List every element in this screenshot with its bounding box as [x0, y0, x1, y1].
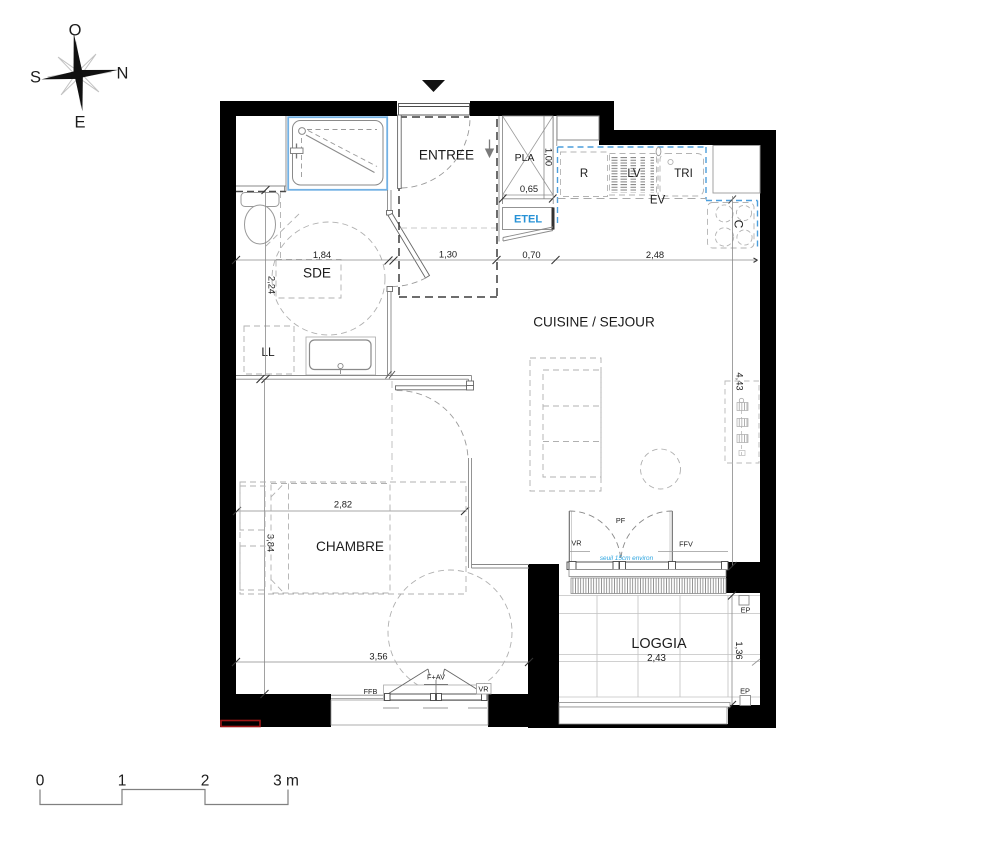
- svg-text:0: 0: [36, 773, 45, 790]
- svg-text:4,43: 4,43: [735, 372, 746, 390]
- svg-text:0,70: 0,70: [522, 249, 540, 260]
- svg-text:ETEL: ETEL: [514, 214, 542, 226]
- svg-text:LL: LL: [261, 345, 275, 359]
- svg-text:FFV: FFV: [679, 540, 693, 549]
- svg-text:seuil 15cm environ: seuil 15cm environ: [600, 555, 654, 562]
- svg-text:3 m: 3 m: [273, 773, 299, 790]
- svg-text:2: 2: [201, 773, 210, 790]
- svg-text:PLA: PLA: [515, 152, 535, 164]
- svg-text:PF: PF: [616, 516, 626, 525]
- svg-text:EP: EP: [741, 606, 751, 615]
- svg-text:1,84: 1,84: [313, 249, 331, 260]
- svg-text:1,30: 1,30: [439, 249, 457, 260]
- svg-text:O: O: [69, 22, 82, 40]
- svg-text:LOGGIA: LOGGIA: [631, 636, 687, 652]
- svg-text:EP: EP: [740, 687, 750, 696]
- svg-text:S: S: [30, 69, 41, 87]
- svg-text:TRI: TRI: [674, 168, 693, 180]
- svg-text:VR: VR: [478, 685, 488, 694]
- svg-text:SDE: SDE: [303, 266, 331, 281]
- svg-text:0,65: 0,65: [520, 183, 538, 194]
- svg-text:C: C: [732, 220, 746, 229]
- svg-text:ENTREE: ENTREE: [419, 148, 474, 163]
- svg-text:2,43: 2,43: [647, 653, 666, 664]
- svg-text:LV: LV: [627, 168, 641, 180]
- svg-text:CHAMBRE: CHAMBRE: [316, 539, 384, 554]
- svg-text:2,82: 2,82: [334, 499, 352, 510]
- svg-text:R: R: [580, 168, 588, 180]
- svg-text:CUISINE / SEJOUR: CUISINE / SEJOUR: [533, 315, 655, 330]
- svg-text:2,24: 2,24: [267, 276, 278, 294]
- svg-text:1: 1: [118, 773, 127, 790]
- svg-text:3,56: 3,56: [369, 651, 387, 662]
- svg-text:2,48: 2,48: [646, 249, 664, 260]
- svg-text:N: N: [117, 65, 129, 83]
- svg-text:EV: EV: [650, 195, 666, 207]
- svg-text:VR: VR: [571, 539, 581, 548]
- svg-text:E: E: [74, 114, 85, 132]
- svg-text:FFB: FFB: [364, 687, 378, 696]
- svg-text:1,36: 1,36: [734, 641, 745, 659]
